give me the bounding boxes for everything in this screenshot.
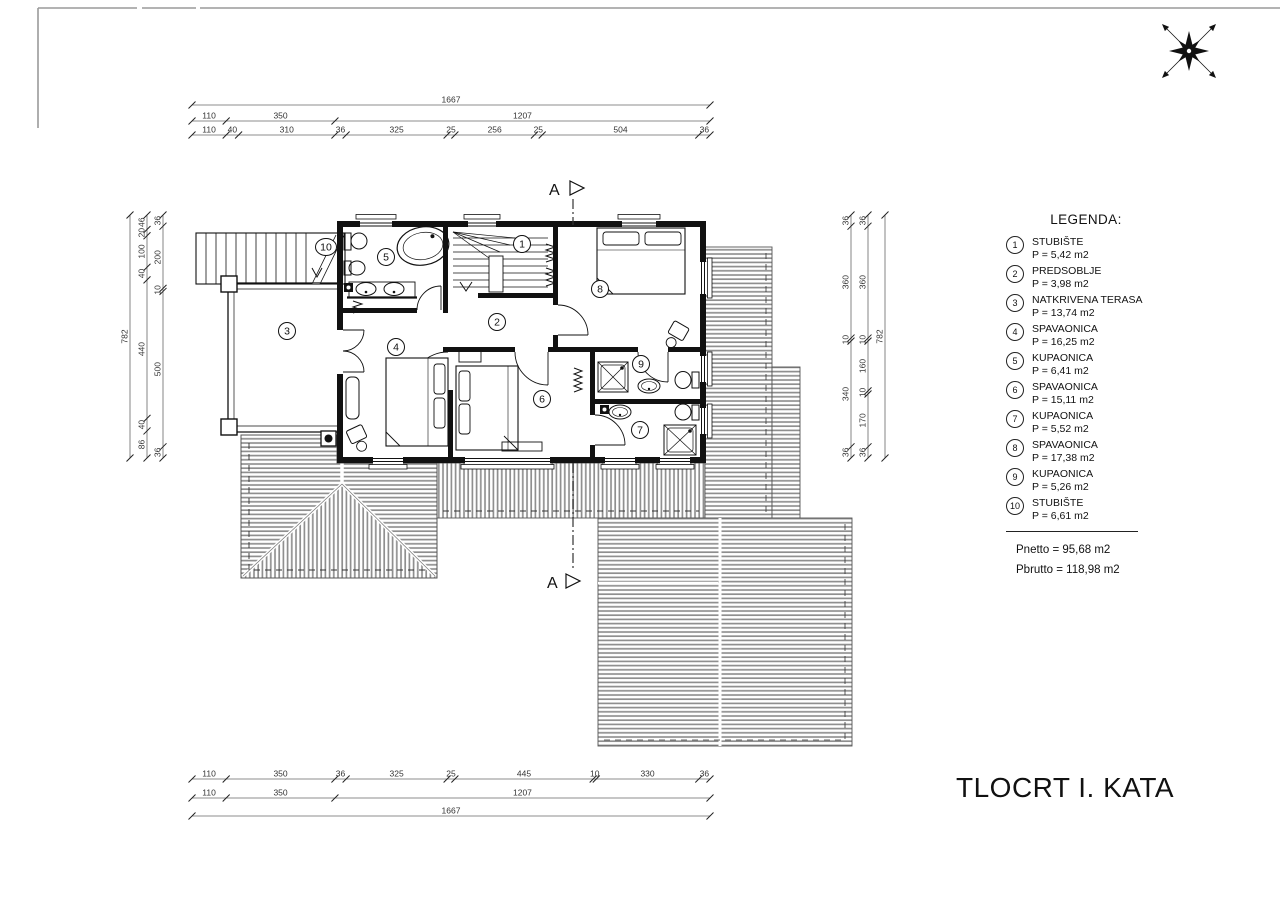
window: [601, 456, 639, 470]
terrace-door: [336, 330, 365, 374]
chair: [346, 424, 372, 454]
dim-label: 310: [280, 125, 294, 135]
legend-item-area: P = 6,61 m2: [1032, 510, 1166, 522]
dim-label: 36: [700, 125, 710, 135]
page-frame: [38, 8, 1280, 128]
dim-label: 110: [202, 788, 216, 798]
shower: [598, 362, 628, 392]
room-label-10: 10: [316, 239, 337, 256]
room-label-7: 7: [632, 422, 649, 439]
toilet: [675, 372, 699, 389]
dim-label: 36: [858, 216, 868, 226]
legend-item: 5KUPAONICAP = 6,41 m2: [1006, 352, 1166, 377]
dim-chain-left_total: 782: [120, 212, 134, 462]
double-sink: [347, 282, 417, 298]
dim-label: 36: [153, 447, 163, 457]
dim-chain-right_detail: 36360101601017036: [858, 212, 872, 462]
legend-separator: [1006, 531, 1138, 532]
dim-label: 36: [841, 216, 851, 226]
legend-items: 1STUBIŠTEP = 5,42 m22PREDSOBLJEP = 3,98 …: [1006, 236, 1166, 522]
legend-item-number: 10: [1006, 497, 1024, 515]
dim-label: 40: [228, 125, 238, 135]
room-number: 2: [494, 317, 500, 329]
legend-item-name: STUBIŠTE: [1032, 236, 1166, 248]
legend-title: LEGENDA:: [1006, 212, 1166, 227]
shower: [664, 425, 696, 455]
legend-item-number: 7: [1006, 410, 1024, 428]
compass-rose-icon: [1162, 24, 1216, 78]
legend-item-number: 1: [1006, 236, 1024, 254]
room-number: 10: [320, 242, 332, 254]
drain-box: [344, 283, 353, 292]
dim-label: 40: [137, 269, 147, 279]
dim-label: 36: [336, 769, 346, 779]
room-number: 1: [519, 239, 525, 251]
dim-label: 25: [534, 125, 544, 135]
dim-label: 325: [390, 125, 404, 135]
dim-label: 110: [202, 111, 216, 121]
window: [464, 215, 500, 229]
drawing-title: TLOCRT I. KATA: [956, 772, 1174, 804]
radiator: [574, 368, 582, 392]
dim-label: 440: [137, 342, 147, 356]
dim-label: 350: [273, 769, 287, 779]
legend-item-name: SPAVAONICA: [1032, 439, 1166, 451]
bed: [386, 358, 448, 446]
legend-item-area: P = 13,74 m2: [1032, 307, 1166, 319]
drain-box: [600, 405, 609, 414]
dim-label: 504: [613, 125, 627, 135]
dim-chain-bottom_total: 1667: [189, 806, 714, 820]
legend-totals: Pnetto = 95,68 m2 Pbrutto = 118,98 m2: [1006, 540, 1166, 580]
legend-item-number: 2: [1006, 265, 1024, 283]
sink: [638, 379, 660, 393]
window: [699, 352, 713, 386]
legend: LEGENDA: 1STUBIŠTEP = 5,42 m22PREDSOBLJE…: [1006, 212, 1166, 580]
section-line: A A: [547, 181, 584, 592]
legend-item-number: 4: [1006, 323, 1024, 341]
dim-label: 86: [137, 439, 147, 449]
dim-label: 325: [390, 769, 404, 779]
dim-label: 782: [120, 329, 130, 343]
dim-label: 350: [273, 111, 287, 121]
dim-label: 1667: [442, 95, 461, 105]
legend-item-area: P = 5,26 m2: [1032, 481, 1166, 493]
legend-item: 6SPAVAONICAP = 15,11 m2: [1006, 381, 1166, 406]
window: [656, 456, 694, 470]
legend-item-number: 5: [1006, 352, 1024, 370]
terrace: [221, 276, 337, 446]
legend-item-area: P = 3,98 m2: [1032, 278, 1166, 290]
dim-label: 110: [202, 769, 216, 779]
dim-label: 782: [875, 329, 885, 343]
legend-item-number: 3: [1006, 294, 1024, 312]
pbrutto-total: Pbrutto = 118,98 m2: [1016, 560, 1166, 580]
legend-item-number: 8: [1006, 439, 1024, 457]
legend-item-area: P = 16,25 m2: [1032, 336, 1166, 348]
legend-item-name: KUPAONICA: [1032, 468, 1166, 480]
section-marker-label: A: [549, 182, 560, 199]
dim-chain-right_inner: 363601034036: [841, 212, 855, 462]
dim-label: 36: [858, 447, 868, 457]
dim-label: 36: [153, 216, 163, 226]
room-number: 5: [383, 252, 389, 264]
legend-item-name: SPAVAONICA: [1032, 381, 1166, 393]
legend-item: 8SPAVAONICAP = 17,38 m2: [1006, 439, 1166, 464]
roof-band-east: [705, 247, 800, 518]
bathroom-7-fixtures: [600, 404, 699, 455]
legend-item-name: SPAVAONICA: [1032, 323, 1166, 335]
section-marker-label: A: [547, 575, 558, 592]
dim-label: 25: [446, 125, 456, 135]
legend-item-name: KUPAONICA: [1032, 352, 1166, 364]
dim-chain-bottom_mid: 1103501207: [189, 788, 714, 802]
toilet: [675, 404, 699, 420]
room-label-9: 9: [633, 356, 650, 373]
bathroom-5-fixtures: [344, 223, 452, 313]
dim-label: 36: [841, 447, 851, 457]
dim-label: 1207: [513, 111, 532, 121]
room-number: 7: [637, 425, 643, 437]
room-number: 8: [597, 284, 603, 296]
room-number: 3: [284, 326, 290, 338]
dim-label: 256: [488, 125, 502, 135]
dim-label: 360: [858, 275, 868, 289]
dim-label: 36: [336, 125, 346, 135]
legend-item-area: P = 17,38 m2: [1032, 452, 1166, 464]
dim-label: 46: [137, 217, 147, 227]
dim-label: 445: [517, 769, 531, 779]
drain-box: [321, 431, 336, 446]
legend-item: 2PREDSOBLJEP = 3,98 m2: [1006, 265, 1166, 290]
room-number: 6: [539, 394, 545, 406]
legend-item-number: 6: [1006, 381, 1024, 399]
legend-item: 7KUPAONICAP = 5,52 m2: [1006, 410, 1166, 435]
legend-item: 4SPAVAONICAP = 16,25 m2: [1006, 323, 1166, 348]
room-number: 9: [638, 359, 644, 371]
floor-plan-sheet: A A 166711035012071104031036325252562550…: [0, 0, 1280, 906]
window: [369, 456, 407, 470]
legend-item-name: PREDSOBLJE: [1032, 265, 1166, 277]
dim-label: 330: [640, 769, 654, 779]
legend-item: 1STUBIŠTEP = 5,42 m2: [1006, 236, 1166, 261]
section-marker-arrow: [570, 181, 584, 195]
window: [461, 456, 554, 470]
toilet: [344, 233, 367, 250]
dim-label: 350: [273, 788, 287, 798]
room-label-1: 1: [514, 236, 531, 253]
bed: [597, 228, 685, 294]
bedroom-8-furniture: [597, 228, 689, 351]
section-marker-arrow: [566, 574, 580, 588]
room-label-8: 8: [592, 281, 609, 298]
dim-label: 20: [137, 228, 147, 238]
dim-label: 40: [137, 420, 147, 430]
dim-label: 1207: [513, 788, 532, 798]
legend-item-number: 9: [1006, 468, 1024, 486]
legend-item-area: P = 15,11 m2: [1032, 394, 1166, 406]
window: [699, 404, 713, 438]
dim-chain-bottom_detail: 11035036325254451033036: [189, 769, 714, 783]
pnetto-total: Pnetto = 95,68 m2: [1016, 540, 1166, 560]
window: [618, 215, 660, 229]
dim-label: 160: [858, 359, 868, 373]
room-label-4: 4: [388, 339, 405, 356]
legend-item-area: P = 5,42 m2: [1032, 249, 1166, 261]
roof-strip-south: [437, 463, 705, 518]
legend-item-name: NATKRIVENA TERASA: [1032, 294, 1166, 306]
room-label-5: 5: [378, 249, 395, 266]
legend-item-name: KUPAONICA: [1032, 410, 1166, 422]
legend-item: 10STUBIŠTEP = 6,61 m2: [1006, 497, 1166, 522]
legend-item-name: STUBIŠTE: [1032, 497, 1166, 509]
dim-label: 36: [700, 769, 710, 779]
wardrobe: [346, 377, 359, 419]
dim-label: 500: [153, 362, 163, 376]
dim-chain-top_total: 1667: [189, 95, 714, 109]
legend-item-area: P = 5,52 m2: [1032, 423, 1166, 435]
dim-label: 360: [841, 275, 851, 289]
bedroom-6-furniture: [456, 350, 582, 451]
dim-label: 170: [858, 413, 868, 427]
window: [699, 258, 713, 298]
roof-southeast: [598, 518, 852, 746]
dim-chain-top_mid: 1103501207: [189, 111, 714, 125]
dim-chain-left_detail: 4620100404404086: [137, 212, 151, 462]
legend-item: 9KUPAONICAP = 5,26 m2: [1006, 468, 1166, 493]
room-label-2: 2: [489, 314, 506, 331]
legend-item-area: P = 6,41 m2: [1032, 365, 1166, 377]
interior-stairs: [453, 232, 555, 292]
dim-label: 200: [153, 250, 163, 264]
bidet: [344, 261, 365, 275]
bed: [456, 366, 518, 450]
room-label-3: 3: [279, 323, 296, 340]
dim-label: 25: [446, 769, 456, 779]
dim-label: 110: [202, 125, 216, 135]
window: [356, 215, 396, 229]
chair: [662, 320, 690, 351]
dim-label: 1667: [442, 806, 461, 816]
room-number: 4: [393, 342, 399, 354]
dim-chain-left_inner: 362001050036: [153, 212, 167, 462]
legend-item: 3NATKRIVENA TERASAP = 13,74 m2: [1006, 294, 1166, 319]
dim-chain-right_total: 782: [875, 212, 889, 462]
dim-chain-top_detail: 1104031036325252562550436: [189, 125, 714, 139]
dim-label: 100: [137, 244, 147, 258]
room-label-6: 6: [534, 391, 551, 408]
dim-label: 340: [841, 387, 851, 401]
sink: [609, 405, 631, 419]
